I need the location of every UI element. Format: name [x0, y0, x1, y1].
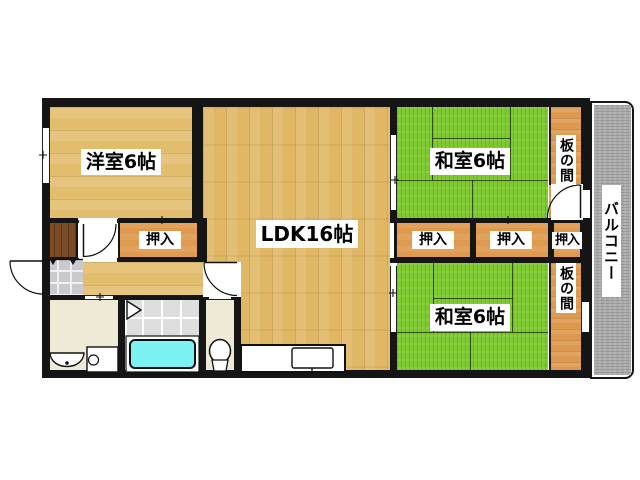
closet-top-b-label: 押入: [490, 231, 532, 249]
entry-step-marks: [50, 260, 76, 265]
kitchen-sink: [292, 348, 333, 368]
dimension-tick-marks: [39, 102, 590, 301]
sink-drain-icon: [65, 361, 69, 365]
balcony-label: バルコニー: [602, 185, 621, 297]
ldk-door-arc: [204, 263, 237, 296]
toilet-icon: [210, 340, 231, 363]
japanese-room-top-label: 和室6帖: [430, 148, 510, 175]
wood-alcove-bottom-label: 板の間: [556, 263, 576, 313]
japanese-room-bottom-label: 和室6帖: [430, 304, 510, 331]
western-room-label: 洋室6帖: [81, 149, 161, 175]
closet-left-label: 押入: [139, 231, 181, 249]
bath-folding-door-icon: [127, 301, 141, 319]
ldk-label: LDK16帖: [256, 220, 358, 248]
wood-alcove-top-label: 板の間: [556, 135, 576, 185]
closet-top-c-label: 押入: [552, 232, 582, 249]
western-door-arc: [84, 224, 117, 257]
entrance-door-arc: [10, 261, 43, 294]
toilet-base-icon: [212, 360, 228, 371]
balcony-door-arc: [548, 185, 581, 218]
floor-plan: 洋室6帖 LDK16帖 和室6帖 和室6帖 押入 押入 押入 押入 板の間 板の…: [0, 0, 640, 480]
washing-machine-pan-icon: [87, 347, 118, 372]
bathtub: [130, 340, 195, 368]
closet-top-a-label: 押入: [412, 231, 454, 249]
